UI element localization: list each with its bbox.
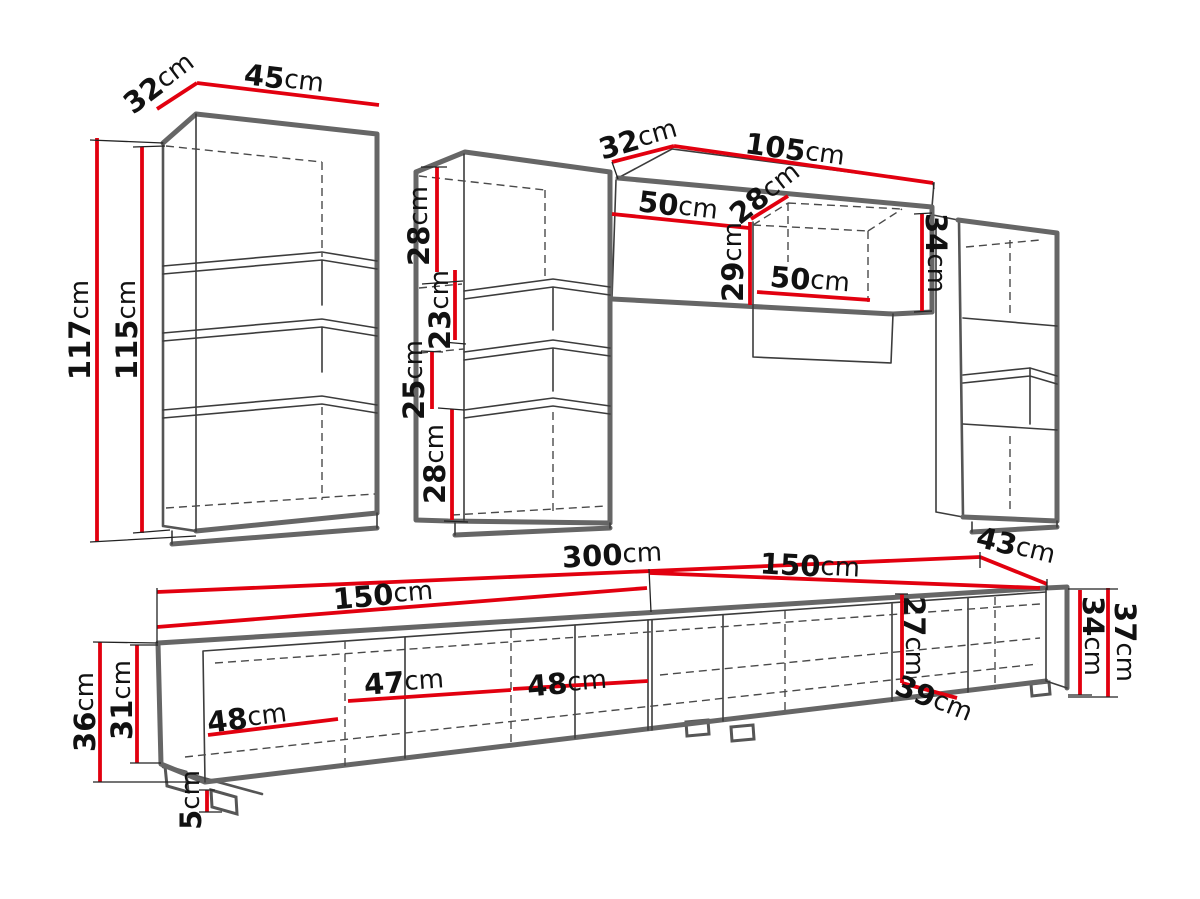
tv-stand-leg (211, 790, 237, 814)
dim-label-mid-25: 25cm (397, 340, 431, 420)
dim-label-mid-28b: 28cm (418, 424, 452, 504)
dim-label-mid-28a: 28cm (402, 186, 436, 266)
dim-label-tv-36: 36cm (68, 672, 102, 752)
dim-label-tv-150r: 150cm (759, 546, 861, 585)
dim-label-tv-37: 37cm (1108, 602, 1142, 682)
dim-label-tv-31: 31cm (105, 660, 139, 740)
dim-label-left-h-inner: 115cm (110, 280, 144, 380)
dim-label-tv-300: 300cm (561, 535, 663, 574)
furniture-dimension-diagram: 32cm 45cm 117cm 115cm 28cm 23cm 25cm 28c… (0, 0, 1200, 899)
dim-label-tv-5: 5cm (174, 770, 208, 830)
dim-label-tv-150l: 150cm (332, 574, 435, 617)
dim-label-left-h-outer: 117cm (63, 280, 97, 380)
dim-label-tv-34: 34cm (1076, 596, 1110, 676)
diagram-canvas: 32cm 45cm 117cm 115cm 28cm 23cm 25cm 28c… (0, 0, 1200, 899)
tv-stand-leg (731, 725, 754, 741)
left-cabinet-drawing (163, 114, 377, 544)
dim-label-mid-23: 23cm (423, 270, 457, 350)
dim-label-wall-29: 29cm (716, 222, 750, 302)
dim-label-tv-27: 27cm (897, 596, 931, 676)
dim-label-wall-34: 34cm (919, 213, 953, 293)
